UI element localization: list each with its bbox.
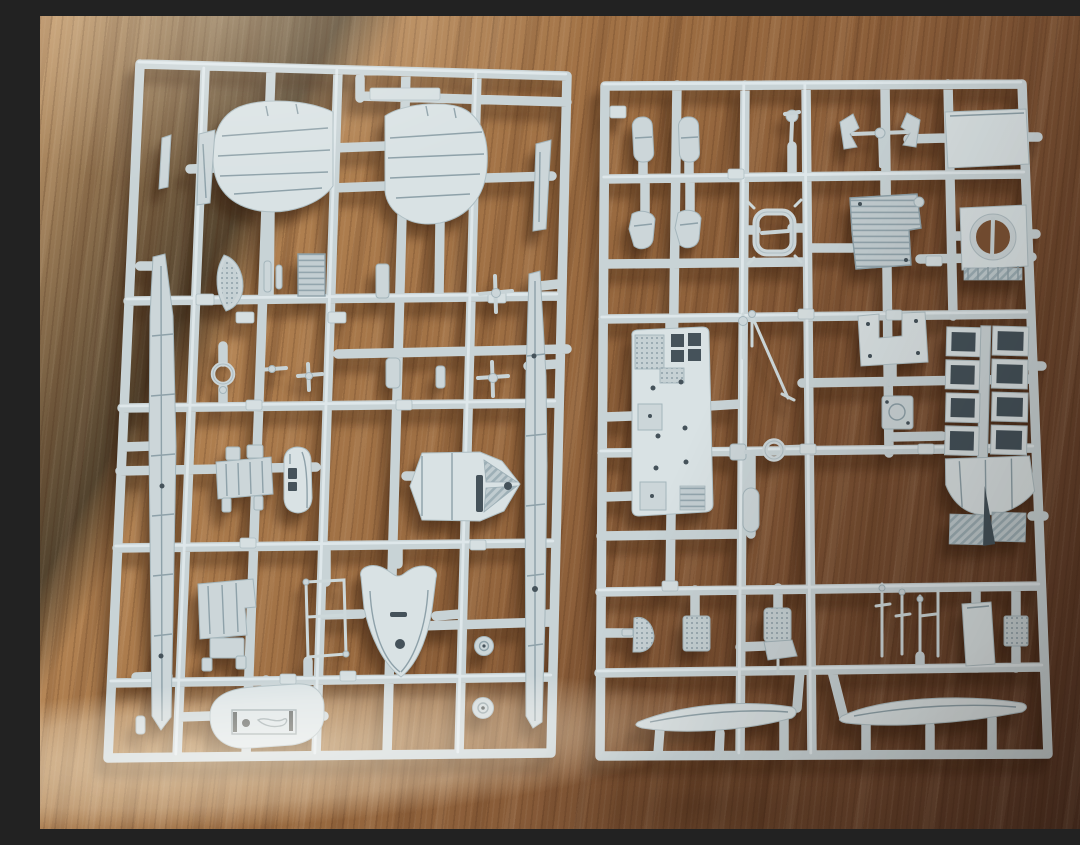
wheel-disc-upper: [475, 637, 494, 656]
sprue-right: [598, 82, 1048, 756]
cowl-ring-finned: [960, 205, 1028, 280]
small-block-part: [376, 264, 389, 298]
perforated-fan: [622, 617, 654, 652]
exhaust-stack-assembly: [941, 325, 1039, 547]
valve-stem: [785, 110, 799, 146]
boot-wedge-right: [675, 210, 701, 247]
leading-edge-slat-right: [839, 698, 1026, 725]
leading-edge-slat-left: [636, 703, 796, 731]
wheel-disc-lower: [473, 698, 494, 719]
canopy-spine: [284, 447, 312, 513]
float-strut-long-left: [149, 254, 176, 730]
float-strut-long-right: [525, 271, 547, 728]
boot-wedge-left: [629, 211, 655, 248]
cylinder-pill-left: [632, 117, 654, 163]
cowl-shield-bell: [361, 566, 437, 677]
flat-access-panel: [945, 109, 1029, 168]
perforated-plate: [683, 616, 710, 651]
gun-mount-bracket: [840, 113, 920, 166]
ring-gasket: [213, 364, 233, 394]
sprue-left: [108, 62, 567, 758]
small-stub-part: [136, 716, 145, 734]
photo-model-kit-sprues: [40, 16, 1080, 829]
ventral-hatch-oval: [210, 684, 324, 748]
radiator-core-ribbed: [298, 254, 325, 296]
carburettor-box: [882, 396, 913, 429]
cylinder-pill-right: [678, 117, 700, 163]
armoured-seat-ribbed: [850, 194, 924, 269]
wedge-right: [533, 140, 551, 231]
tailplane-half-left: [213, 101, 333, 212]
hatched-plate: [1004, 616, 1028, 646]
access-door-panel: [962, 602, 995, 666]
ring-sight: [748, 200, 801, 264]
engine-block: [216, 445, 273, 512]
lever-rod-cluster: [876, 584, 938, 656]
pilot-seat-perforated: [764, 608, 797, 673]
link-pill: [743, 488, 759, 532]
tailplane-half-right: [385, 104, 487, 224]
cowling-hexagon-plate: [410, 452, 520, 521]
sprue-scene: [40, 16, 1080, 829]
cylinder-seams: [635, 137, 698, 138]
tail-fin-wedge: [197, 130, 215, 205]
tail-fin-small: [159, 135, 171, 189]
cockpit-floor-plate: [632, 327, 713, 516]
